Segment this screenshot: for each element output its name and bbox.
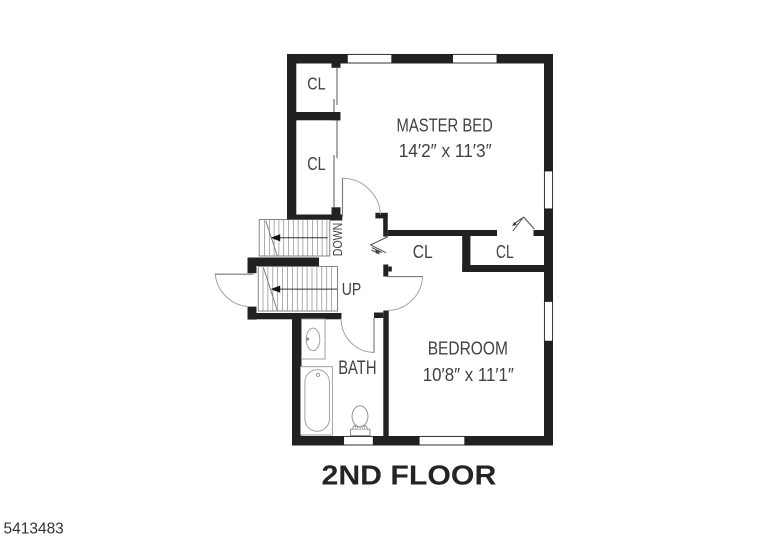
svg-text:BEDROOM: BEDROOM: [428, 338, 508, 359]
svg-text:5413483: 5413483: [4, 521, 64, 538]
svg-text:CL: CL: [496, 242, 514, 262]
svg-text:MASTER BED: MASTER BED: [397, 114, 493, 135]
svg-text:UP: UP: [342, 279, 362, 299]
svg-text:10′8″ x 11′1″: 10′8″ x 11′1″: [423, 364, 514, 385]
svg-text:14′2″ x 11′3″: 14′2″ x 11′3″: [399, 140, 492, 161]
svg-text:2ND FLOOR: 2ND FLOOR: [322, 459, 497, 490]
svg-text:CL: CL: [413, 242, 433, 262]
svg-text:CL: CL: [307, 73, 326, 93]
svg-text:BATH: BATH: [338, 357, 376, 379]
svg-text:DOWN: DOWN: [331, 223, 345, 257]
svg-text:CL: CL: [307, 154, 325, 174]
